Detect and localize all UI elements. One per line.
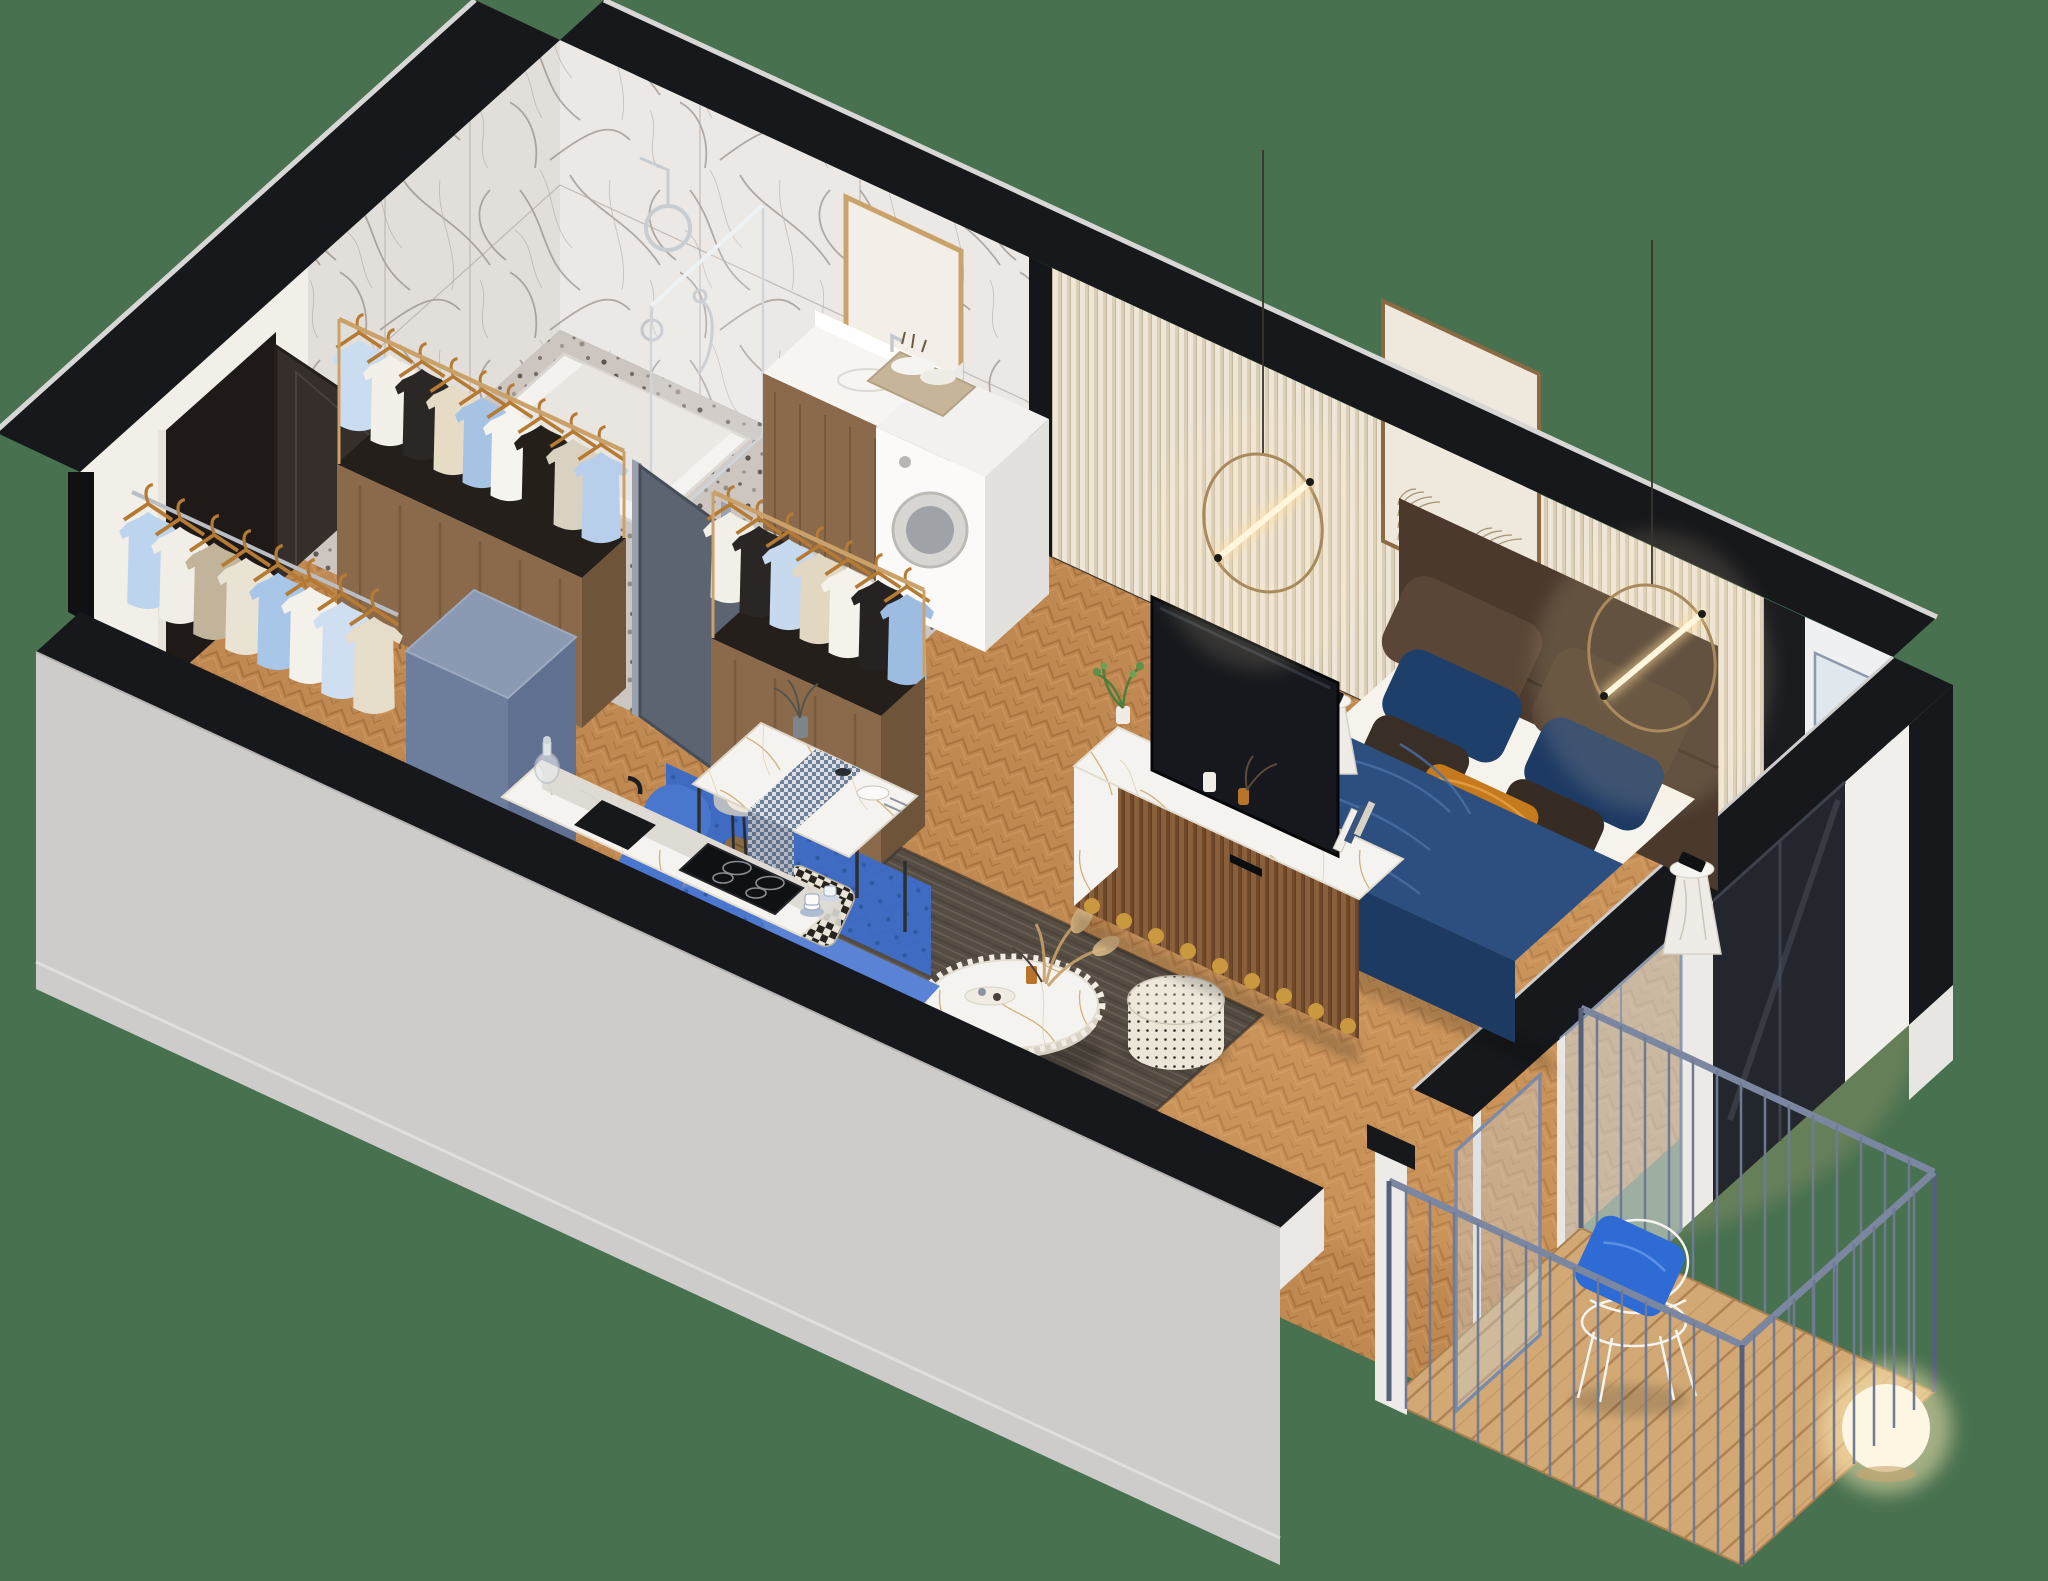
vase bbox=[1203, 772, 1216, 792]
floorplan-render: Cutaway 3D isometric render of a studio … bbox=[0, 0, 2048, 1581]
nightstand-right bbox=[1663, 851, 1721, 954]
se-white-pier-1 bbox=[1845, 725, 1909, 1082]
plate bbox=[857, 786, 889, 800]
table-vase bbox=[793, 716, 808, 738]
se-black-pier bbox=[1909, 685, 1953, 1025]
candle bbox=[1238, 788, 1249, 805]
sphere-lamp bbox=[1820, 1362, 1952, 1494]
w-corner-cap bbox=[68, 472, 94, 626]
apartment-svg bbox=[0, 0, 2048, 1581]
candle bbox=[1026, 966, 1037, 984]
cup bbox=[835, 768, 851, 776]
